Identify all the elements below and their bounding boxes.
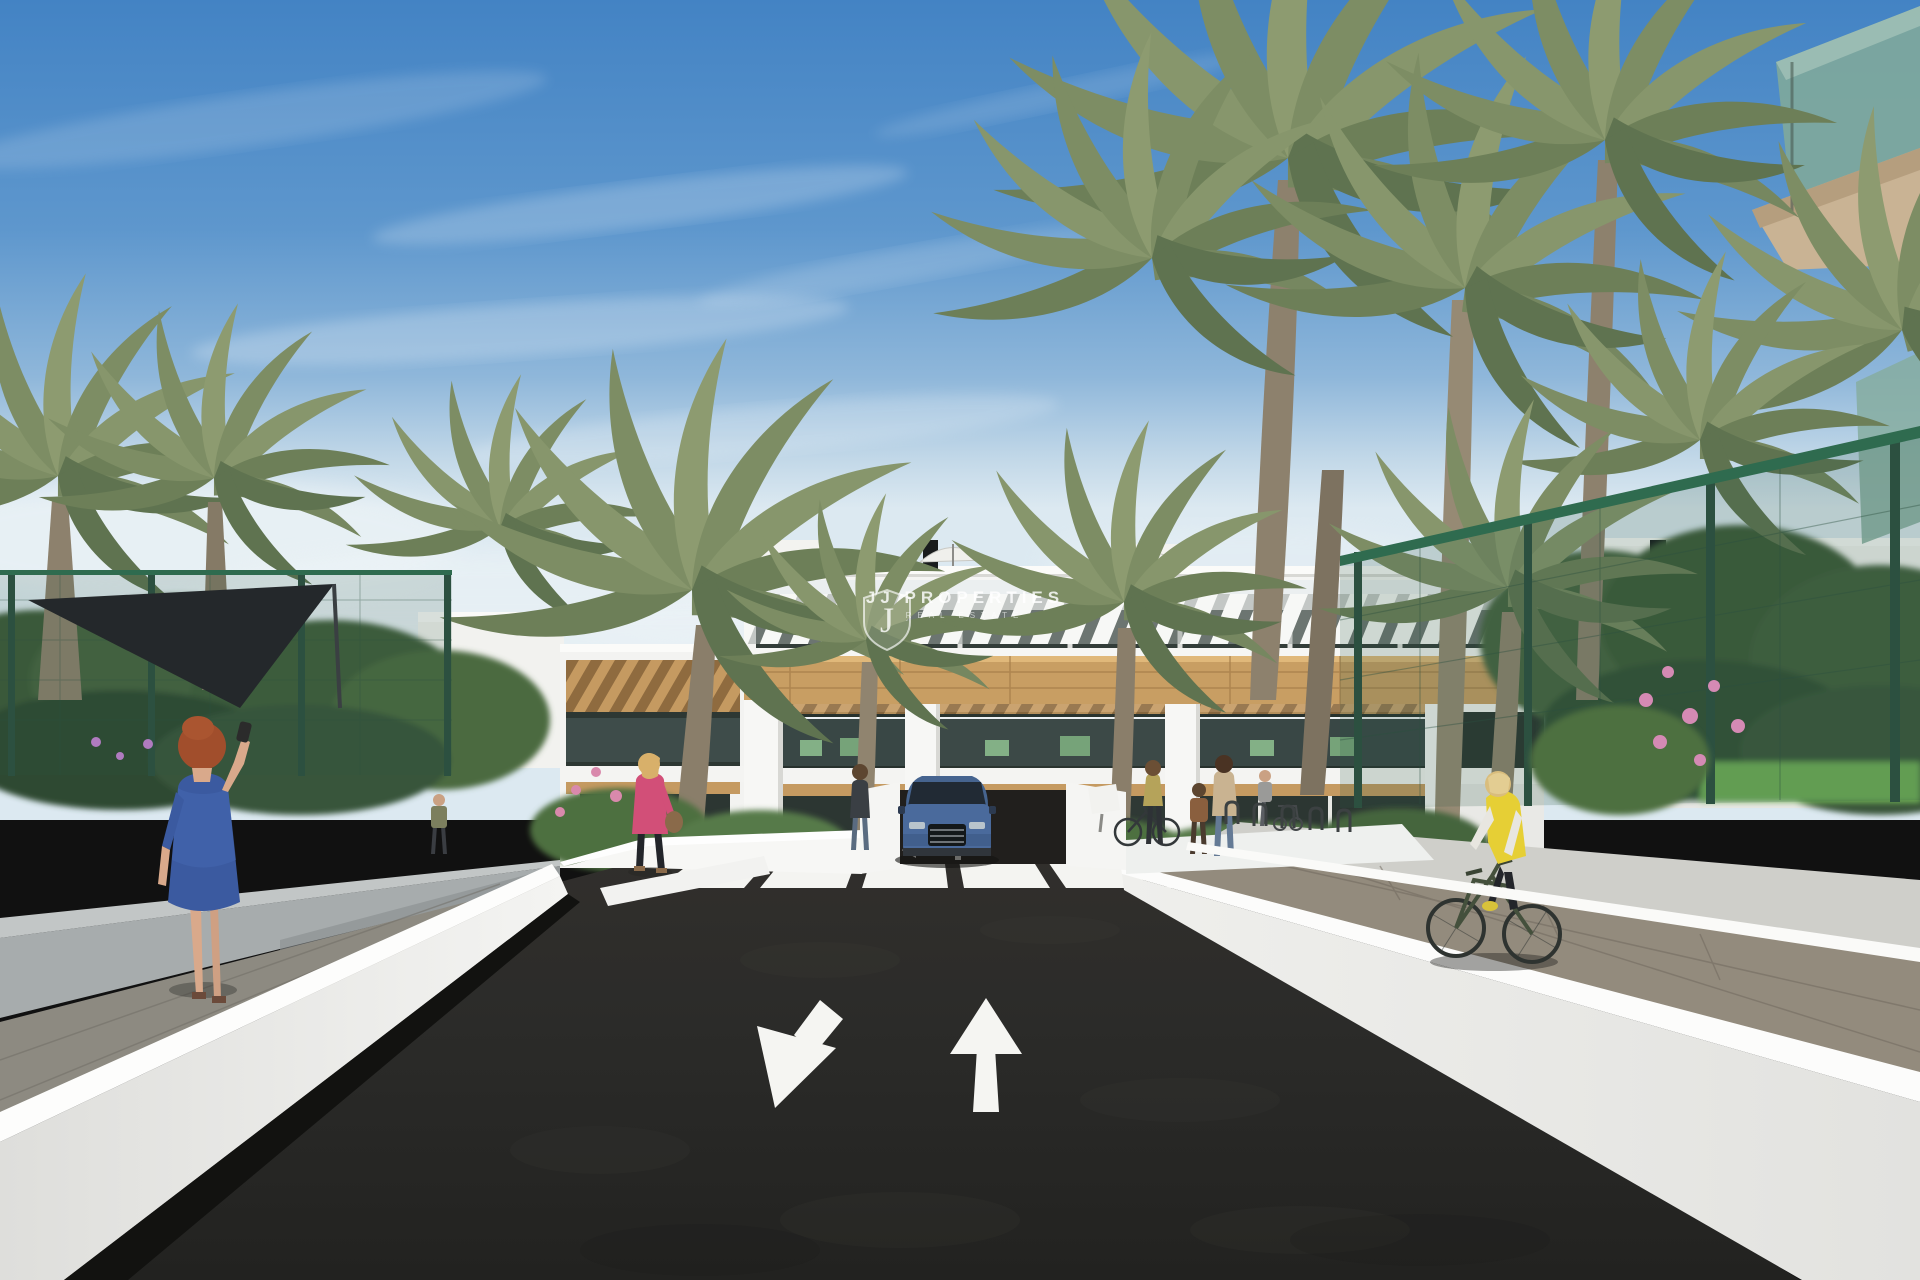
scene-canvas bbox=[0, 0, 1920, 1280]
car bbox=[895, 776, 999, 868]
render-image: J JJ PROPERTIES REAL ESTATE bbox=[0, 0, 1920, 1280]
